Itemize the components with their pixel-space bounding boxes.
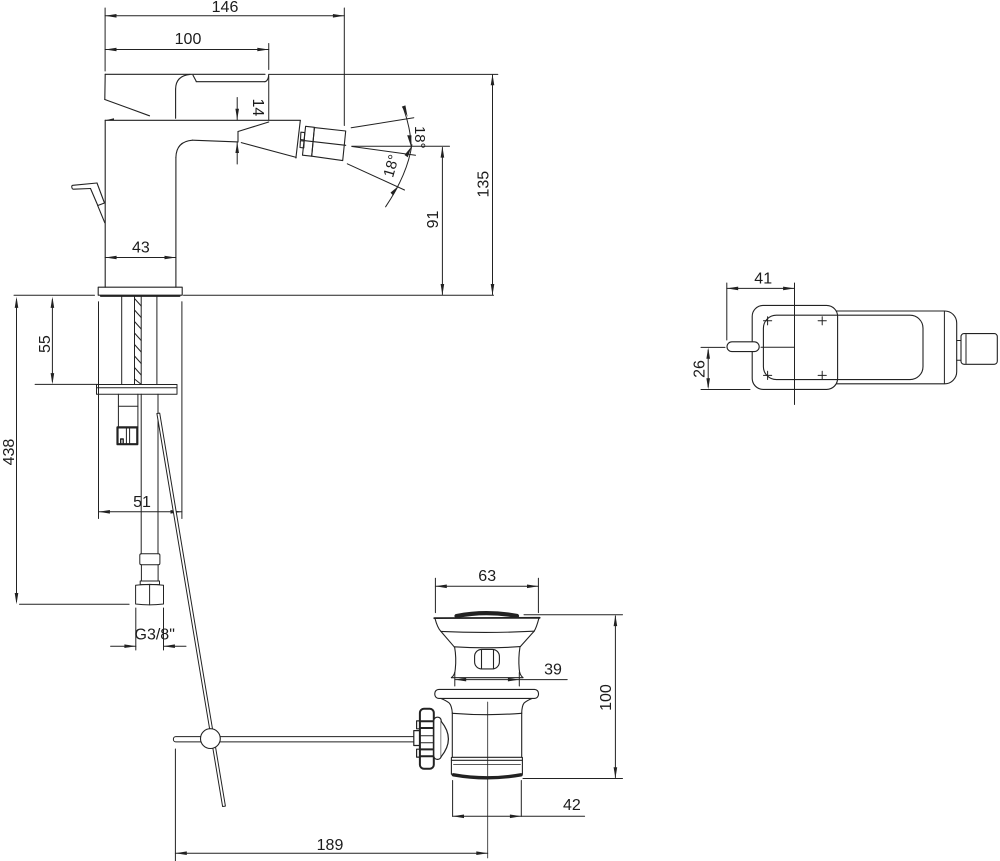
svg-text:91: 91	[425, 211, 442, 229]
svg-text:39: 39	[544, 662, 562, 679]
svg-text:100: 100	[598, 684, 615, 711]
svg-text:18°: 18°	[411, 126, 428, 149]
svg-text:18°: 18°	[380, 153, 403, 179]
svg-text:43: 43	[132, 239, 150, 256]
svg-text:100: 100	[175, 31, 202, 48]
svg-text:14: 14	[249, 99, 266, 117]
svg-text:41: 41	[754, 271, 772, 288]
svg-text:135: 135	[476, 171, 493, 198]
svg-text:146: 146	[212, 0, 239, 16]
svg-text:63: 63	[478, 568, 496, 585]
svg-text:55: 55	[37, 335, 54, 353]
svg-text:26: 26	[692, 360, 709, 378]
svg-text:51: 51	[133, 494, 151, 511]
svg-text:438: 438	[1, 439, 18, 466]
svg-text:42: 42	[563, 797, 581, 814]
svg-text:G3/8": G3/8"	[135, 627, 175, 644]
svg-text:189: 189	[317, 837, 344, 854]
